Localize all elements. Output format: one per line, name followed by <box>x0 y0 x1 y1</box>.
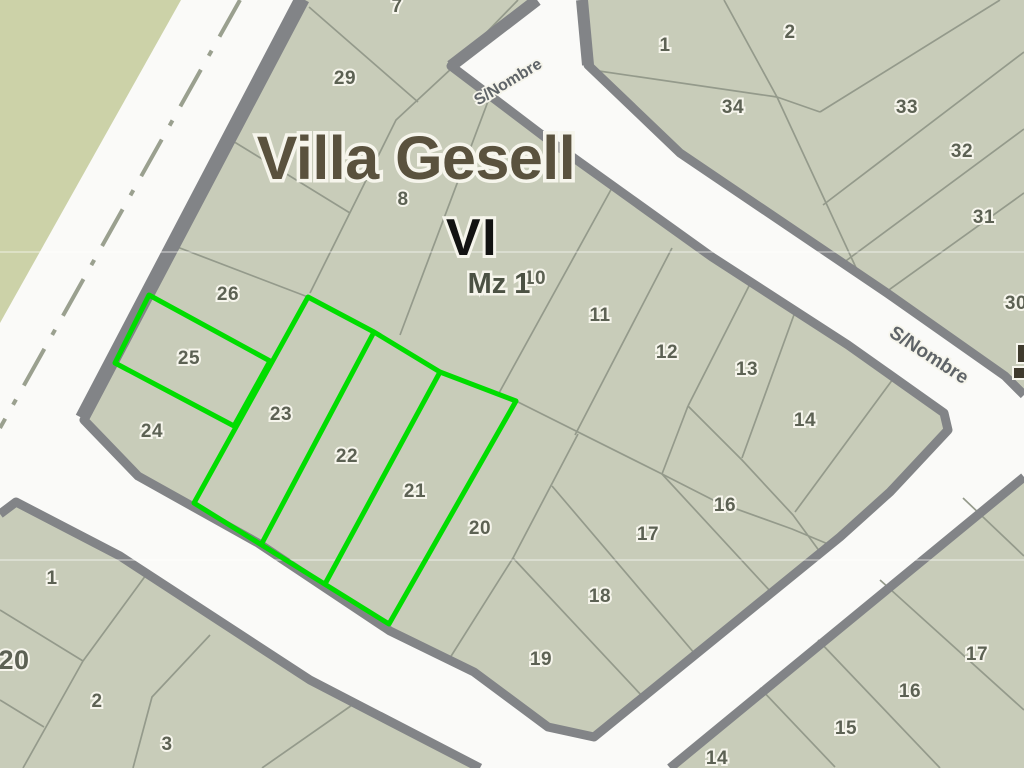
svg-text:31: 31 <box>973 207 995 228</box>
svg-text:VI: VI <box>446 209 498 267</box>
svg-text:16: 16 <box>899 681 921 702</box>
svg-text:19: 19 <box>530 649 552 670</box>
svg-text:24: 24 <box>141 421 163 442</box>
svg-text:17: 17 <box>637 524 659 545</box>
svg-text:21: 21 <box>404 481 426 502</box>
svg-text:8: 8 <box>397 189 408 210</box>
svg-text:22: 22 <box>336 446 358 467</box>
svg-text:20: 20 <box>469 518 491 539</box>
svg-text:1: 1 <box>659 35 670 56</box>
svg-text:1: 1 <box>46 568 57 589</box>
svg-text:3: 3 <box>161 734 172 755</box>
svg-text:14: 14 <box>794 410 816 431</box>
svg-text:Villa Gesell: Villa Gesell <box>257 124 575 192</box>
svg-text:2: 2 <box>784 22 795 43</box>
svg-text:30: 30 <box>1005 293 1024 314</box>
svg-text:20: 20 <box>0 645 30 675</box>
svg-text:Mz 1: Mz 1 <box>468 268 531 300</box>
svg-text:18: 18 <box>589 586 611 607</box>
svg-text:26: 26 <box>217 284 239 305</box>
svg-text:7: 7 <box>391 0 402 17</box>
svg-text:13: 13 <box>736 359 758 380</box>
svg-text:23: 23 <box>270 404 292 425</box>
svg-text:15: 15 <box>835 718 857 739</box>
svg-text:17: 17 <box>966 644 988 665</box>
svg-text:29: 29 <box>334 68 356 89</box>
svg-text:2: 2 <box>91 691 102 712</box>
svg-text:12: 12 <box>656 342 678 363</box>
svg-text:16: 16 <box>714 495 736 516</box>
svg-text:34: 34 <box>722 97 744 118</box>
svg-text:33: 33 <box>896 97 918 118</box>
svg-text:11: 11 <box>589 305 610 326</box>
svg-text:32: 32 <box>951 141 973 162</box>
svg-text:25: 25 <box>178 348 200 369</box>
svg-text:14: 14 <box>706 748 728 768</box>
